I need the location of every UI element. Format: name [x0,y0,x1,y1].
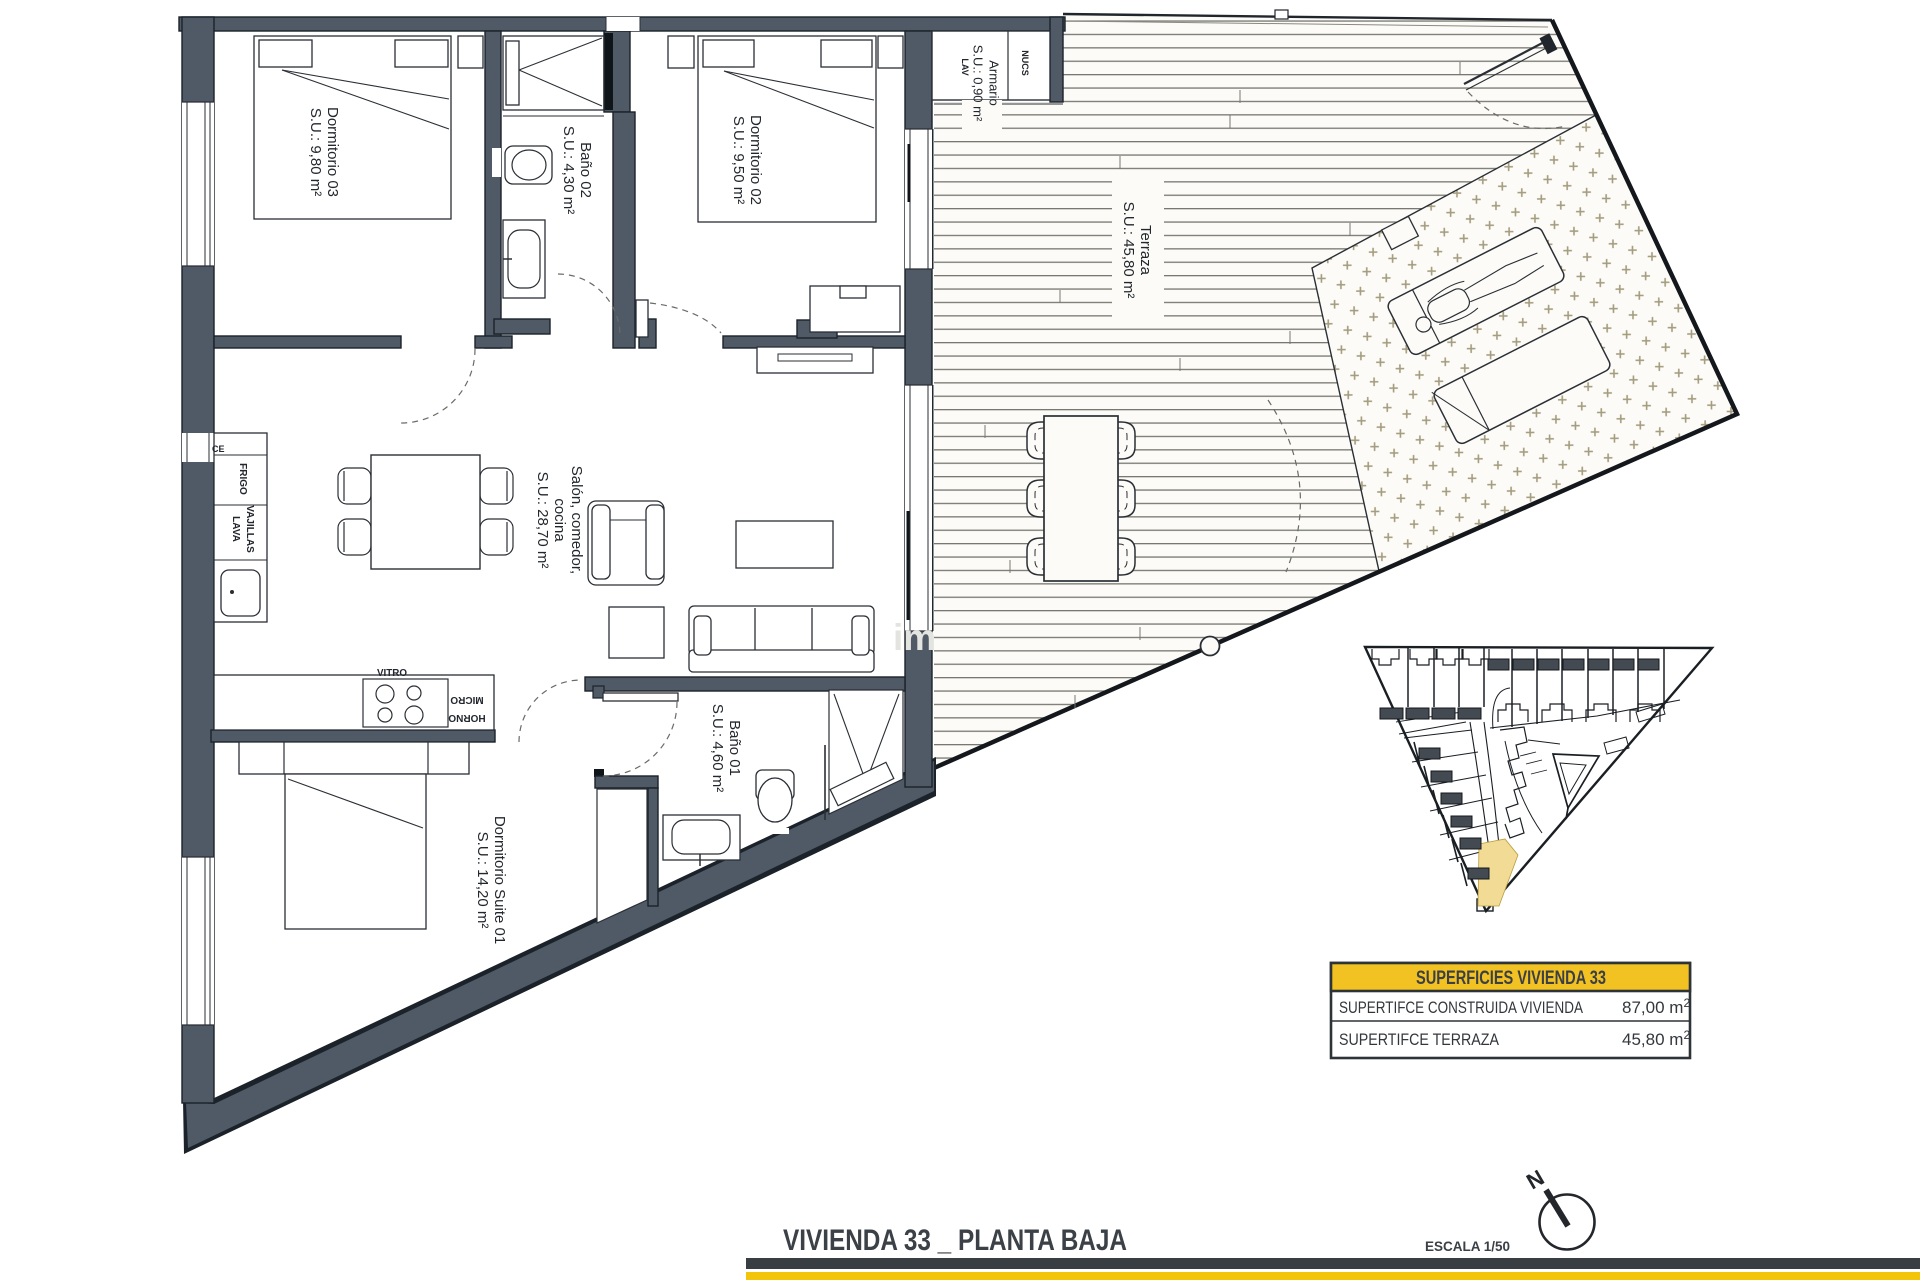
svg-text:LAVA: LAVA [230,516,241,542]
svg-text:SUPERFICIES VIVIENDA 33: SUPERFICIES VIVIENDA 33 [1416,968,1606,989]
svg-text:ESCALA 1/50: ESCALA 1/50 [1425,1238,1510,1254]
svg-text:im: im [893,617,936,658]
svg-text:VITRO: VITRO [377,668,407,679]
svg-text:VIVIENDA 33 _ PLANTA BAJA: VIVIENDA 33 _ PLANTA BAJA [783,1224,1127,1257]
svg-text:CE: CE [212,444,225,454]
svg-text:MICRO: MICRO [450,694,484,705]
svg-text:SUPERTIFCE CONSTRUIDA VIVIENDA: SUPERTIFCE CONSTRUIDA VIVIENDA [1339,998,1584,1017]
svg-text:NUCS: NUCS [1020,50,1030,76]
svg-text:HORNO: HORNO [448,712,485,723]
svg-text:Dormitorio Suite 01S.U.: 14,20: Dormitorio Suite 01S.U.: 14,20 m² [474,816,508,944]
svg-text:LAV: LAV [960,58,970,75]
svg-text:Dormitorio 02S.U.: 9,50 m²: Dormitorio 02S.U.: 9,50 m² [730,115,764,205]
svg-text:45,80 m2: 45,80 m2 [1622,1028,1690,1049]
svg-text:Dormitorio 03S.U.: 9,80 m²: Dormitorio 03S.U.: 9,80 m² [307,107,341,197]
svg-text:SUPERTIFCE TERRAZA: SUPERTIFCE TERRAZA [1339,1030,1500,1049]
svg-text:VAJILLAS: VAJILLAS [244,505,255,553]
svg-text:87,00 m2: 87,00 m2 [1622,996,1690,1017]
svg-text:FRIGO: FRIGO [237,463,248,495]
